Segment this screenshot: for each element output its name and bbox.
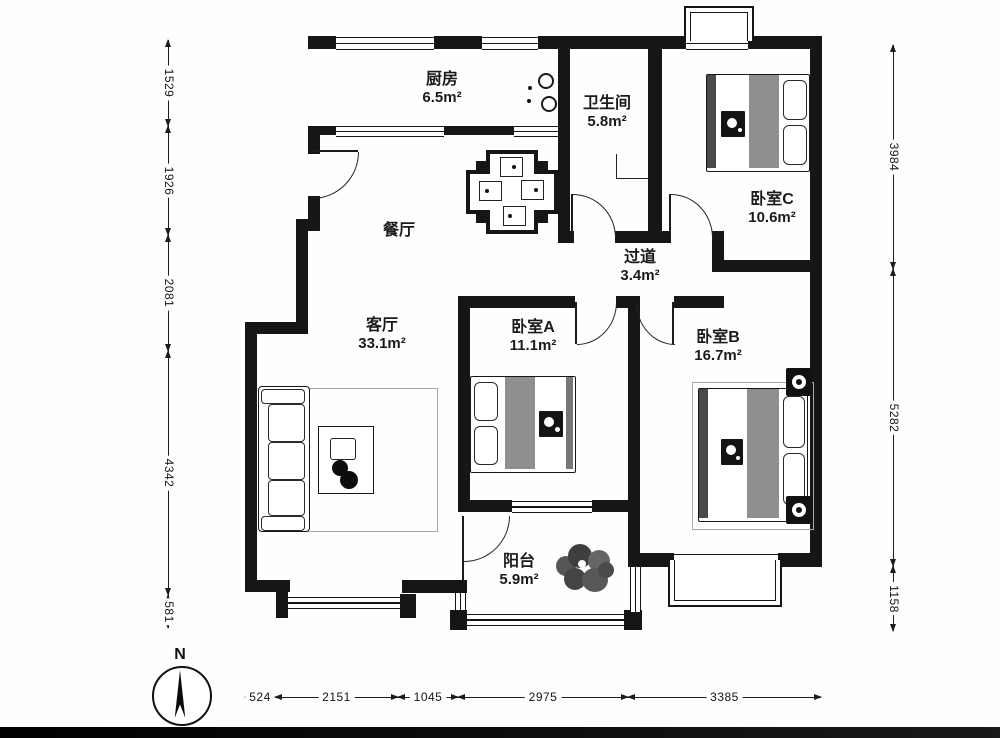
sofa-cushion [268, 480, 305, 516]
wall [458, 296, 575, 308]
dim-left-3: 2081 [168, 235, 169, 351]
bay-window [668, 560, 782, 607]
wall [712, 260, 822, 272]
bed-runner [749, 75, 779, 168]
pillow [474, 382, 498, 421]
window [512, 501, 592, 513]
wall [296, 219, 320, 231]
wall [400, 594, 416, 618]
wall [628, 296, 640, 557]
dim-right-2: 5282 [893, 269, 894, 566]
dining-chair [476, 161, 487, 172]
shower-partition [616, 154, 649, 179]
dim-bottom-4: 2975 [458, 697, 628, 698]
dim-bottom-2: 2151 [275, 697, 398, 698]
room-label-bedroom-a: 卧室A 11.1m² [510, 318, 557, 355]
wall [245, 334, 257, 592]
bed [706, 74, 810, 172]
wall [538, 36, 686, 49]
room-label-living: 客厅 33.1m² [358, 316, 406, 353]
north-label: N [174, 646, 186, 664]
dim-left-4: 4342 [168, 351, 169, 595]
window [336, 37, 434, 50]
wall [458, 296, 470, 512]
pillow [783, 80, 807, 120]
room-label-bedroom-b: 卧室B 16.7m² [694, 328, 742, 365]
room-label-hallway: 过道 3.4m² [620, 248, 659, 285]
sofa-cushion [268, 404, 305, 442]
dim-left-1: 1529 [168, 40, 169, 126]
bottom-scan-bar [0, 727, 1000, 738]
room-label-bedroom-c: 卧室C 10.6m² [748, 190, 796, 227]
stove-dot [528, 86, 532, 90]
wall [558, 49, 570, 243]
wall [615, 231, 671, 243]
wall [276, 580, 288, 618]
dim-right-3: 1158 [893, 566, 894, 631]
dim-right-1: 3984 [893, 45, 894, 269]
place-setting [479, 181, 502, 201]
bathroom-door-arc [573, 194, 616, 238]
bedroom-c-door-arc [671, 194, 713, 238]
dim-bottom-3: 1045 [398, 697, 458, 698]
room-label-balcony: 阳台 5.9m² [499, 552, 538, 589]
wall [308, 36, 336, 49]
place-setting-dot [508, 214, 512, 218]
bed-footrail [699, 389, 708, 518]
stove-burner-icon [541, 96, 557, 112]
bedroom-a-door-arc [577, 302, 617, 345]
dining-chair [537, 161, 548, 172]
window [482, 37, 538, 50]
stove-burner-icon [538, 73, 554, 89]
wall [245, 322, 308, 334]
wall [778, 553, 822, 567]
bed-runner [747, 389, 779, 518]
entry-door-arc [312, 152, 359, 199]
pillow [783, 396, 805, 448]
wall [592, 500, 640, 512]
place-setting-dot [534, 188, 538, 192]
room-label-bathroom: 卫生间 5.8m² [583, 94, 631, 131]
stove-dot [527, 99, 531, 103]
sofa [258, 386, 310, 532]
bed-footrail [566, 377, 573, 469]
wall [458, 500, 512, 512]
nightstand [786, 368, 812, 396]
place-setting [503, 206, 526, 226]
dining-chair [476, 212, 487, 223]
bed [470, 376, 576, 473]
wall [402, 580, 467, 593]
dining-chair [537, 212, 548, 223]
wall [624, 610, 642, 630]
bedroom-b-door-arc [636, 302, 675, 345]
sofa-armrest [261, 389, 305, 404]
dim-bottom-1: 524 [245, 697, 275, 698]
coffee-table-tray [330, 438, 356, 460]
place-setting-dot [512, 165, 516, 169]
window [514, 126, 558, 137]
wall [434, 36, 482, 49]
coffee-table [318, 426, 374, 494]
pillow [783, 125, 807, 165]
nightstand [786, 496, 812, 524]
bay-window [684, 6, 754, 41]
wall [648, 49, 662, 231]
sofa-armrest [261, 516, 305, 531]
teapot-icon [340, 471, 358, 489]
bed-runner [505, 377, 535, 469]
sofa-cushion [268, 442, 305, 480]
wall [444, 126, 514, 135]
dim-left-5: 581 [168, 595, 169, 628]
bed-headrail [707, 75, 716, 168]
bed-tray [721, 111, 745, 137]
bed-tray [721, 439, 743, 465]
room-label-dining: 餐厅 [383, 221, 415, 240]
window [336, 126, 444, 137]
window [467, 614, 625, 626]
floorplan-canvas: 厨房 6.5m² 卫生间 5.8m² 卧室C 10.6m² 餐厅 过道 3.4m… [0, 0, 1000, 738]
pillow [474, 426, 498, 465]
dim-bottom-5: 3385 [628, 697, 821, 698]
place-setting [521, 180, 544, 200]
wall [296, 231, 308, 334]
wall [450, 610, 467, 630]
wall [674, 296, 724, 308]
place-setting-dot [485, 189, 489, 193]
dim-left-2: 1926 [168, 126, 169, 235]
window [288, 597, 400, 609]
bed-tray [539, 411, 563, 437]
room-label-kitchen: 厨房 6.5m² [422, 70, 461, 107]
